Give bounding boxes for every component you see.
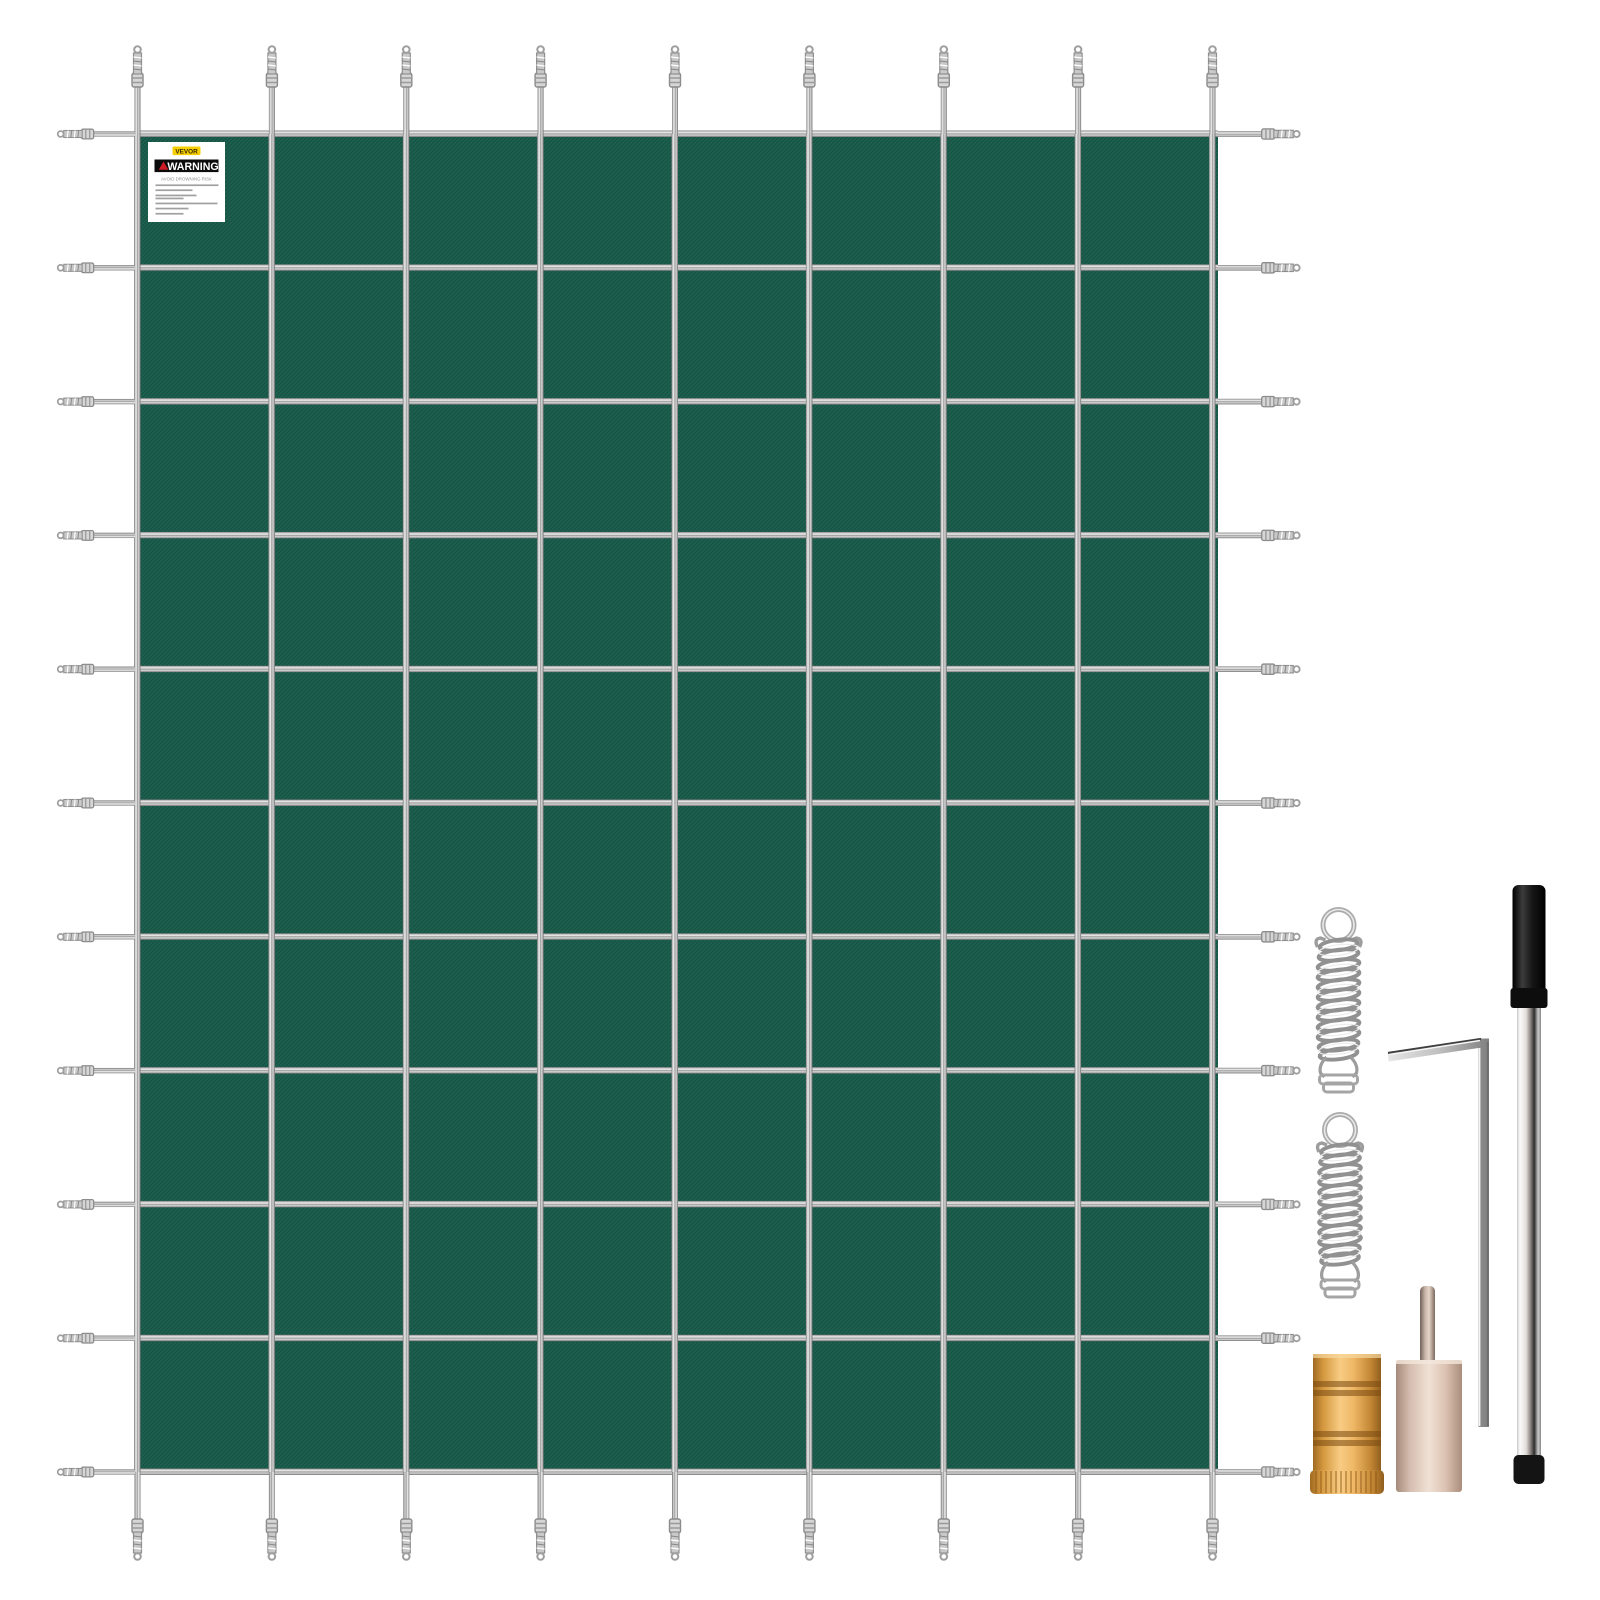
svg-text:VEVOR: VEVOR xyxy=(175,148,198,155)
svg-text:WARNING: WARNING xyxy=(167,161,218,173)
svg-text:AVOID DROWNING RISK: AVOID DROWNING RISK xyxy=(161,177,212,182)
